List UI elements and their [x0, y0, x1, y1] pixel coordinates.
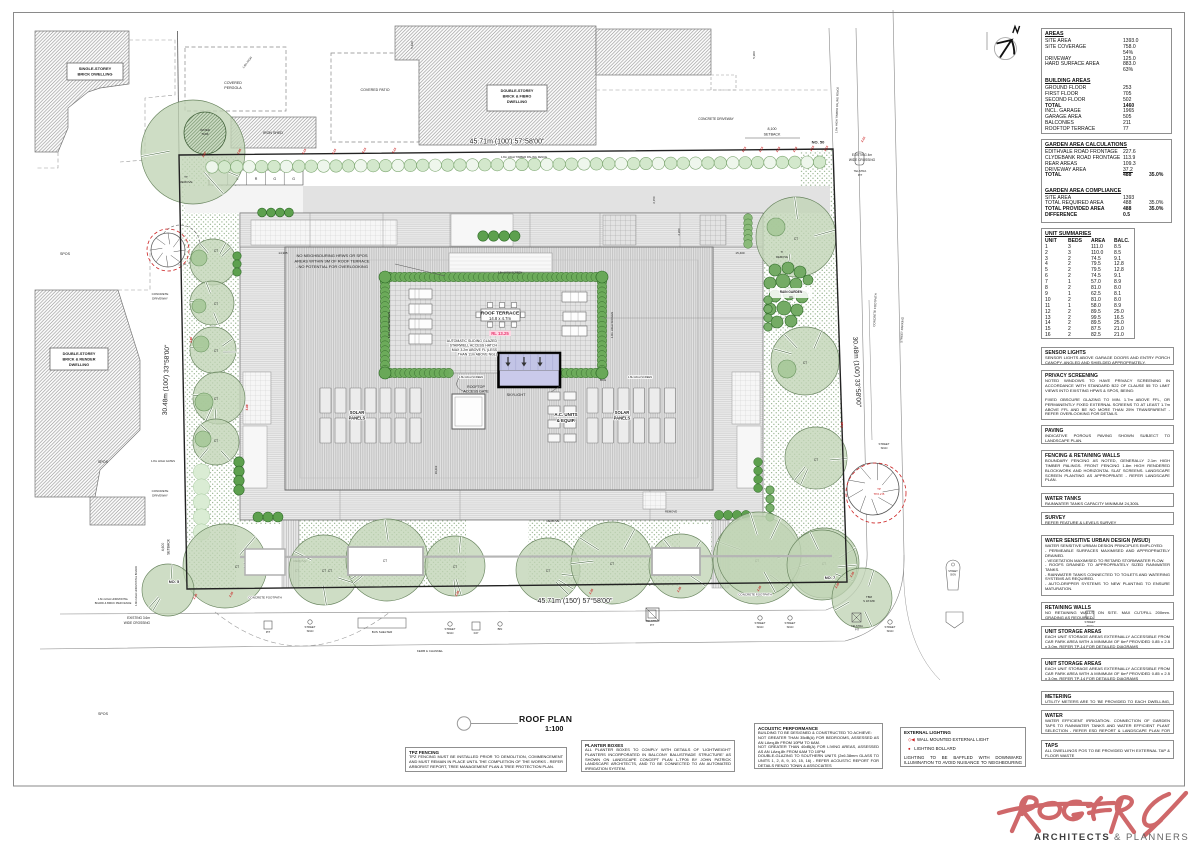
svg-text:1.8m HIGH SCREEN: 1.8m HIGH SCREEN: [498, 271, 523, 275]
svg-text:S 18 IMD: S 18 IMD: [863, 599, 875, 603]
svg-text:AUTOMATIC SLIDING GLAZED: AUTOMATIC SLIDING GLAZED: [447, 339, 498, 343]
svg-text:STREET PARKING: STREET PARKING: [899, 316, 904, 343]
svg-text:1.8m HIGH HORIZONTAL: 1.8m HIGH HORIZONTAL: [98, 597, 129, 601]
svg-text:SOLAR: SOLAR: [350, 410, 365, 415]
svg-text:3.10: 3.10: [809, 145, 816, 152]
svg-text:PANELS: PANELS: [349, 416, 366, 421]
svg-text:SPOS: SPOS: [98, 712, 109, 716]
svg-text:CT: CT: [546, 569, 550, 573]
svg-text:ROOFTOP: ROOFTOP: [467, 385, 485, 389]
svg-text:1.8m HIGH TIMBER PALING FENCE: 1.8m HIGH TIMBER PALING FENCE: [834, 87, 840, 134]
svg-text:G: G: [273, 177, 276, 181]
svg-text:IRON SHED: IRON SHED: [263, 131, 283, 135]
svg-text:ICP: ICP: [474, 631, 479, 635]
svg-text:CT: CT: [803, 361, 807, 365]
svg-text:TI: TI: [781, 250, 784, 254]
svg-text:CONCRETE: CONCRETE: [152, 292, 169, 296]
svg-text:SIGN: SIGN: [307, 629, 314, 633]
svg-text:CT: CT: [328, 569, 332, 573]
svg-text:BCG: BCG: [600, 378, 606, 382]
svg-text:DRIVEWAY: DRIVEWAY: [152, 494, 168, 498]
svg-text:- NO POTENTIAL FOR OVERLOOKING: - NO POTENTIAL FOR OVERLOOKING: [296, 264, 368, 269]
svg-text:KERB & CHANNEL: KERB & CHANNEL: [417, 649, 444, 653]
svg-text:TANK: TANK: [201, 132, 208, 136]
svg-text:3.60: 3.60: [840, 422, 844, 428]
svg-text:DOUBLE-STOREY: DOUBLE-STOREY: [63, 352, 96, 356]
svg-text:SPOS: SPOS: [98, 460, 109, 464]
svg-text:45.71m (100') 57°58'00": 45.71m (100') 57°58'00": [470, 138, 545, 146]
svg-text:SKYLIGHT: SKYLIGHT: [507, 393, 526, 397]
svg-text:CT: CT: [214, 302, 218, 306]
svg-text:CT: CT: [322, 569, 326, 573]
svg-text:COVERED: COVERED: [224, 81, 242, 85]
svg-text:SOLAR: SOLAR: [615, 410, 630, 415]
svg-text:CT: CT: [214, 249, 218, 253]
svg-text:3.10: 3.10: [775, 146, 782, 153]
svg-text:BRICK DWELLING: BRICK DWELLING: [77, 72, 112, 77]
svg-text:SPOS: SPOS: [60, 252, 71, 256]
svg-text:3.10: 3.10: [792, 146, 799, 153]
svg-text:6,150: 6,150: [652, 196, 656, 203]
svg-text:8,100: 8,100: [768, 127, 777, 131]
svg-text:NO. 7: NO. 7: [825, 575, 836, 580]
svg-text:AREAS WITHIN 9M OF ROOF TERRAC: AREAS WITHIN 9M OF ROOF TERRACE: [294, 259, 369, 264]
svg-text:REMOVE: REMOVE: [665, 510, 677, 514]
svg-text:CT: CT: [383, 559, 387, 563]
svg-text:4,600: 4,600: [161, 543, 165, 552]
svg-text:PERGOLA: PERGOLA: [224, 86, 242, 90]
svg-text:SINGLE-STOREY: SINGLE-STOREY: [79, 66, 112, 71]
svg-text:SETBACK: SETBACK: [167, 538, 171, 555]
svg-text:1.8m HIGH SCREEN: 1.8m HIGH SCREEN: [387, 312, 391, 338]
svg-text:1.8m HIGH TIMBER PALING FENCE: 1.8m HIGH TIMBER PALING FENCE: [501, 155, 547, 159]
svg-text:SIGN: SIGN: [447, 631, 454, 635]
svg-text:CONCRETE FOOTPATH: CONCRETE FOOTPATH: [248, 596, 282, 600]
svg-text:2.22: 2.22: [860, 136, 867, 143]
svg-text:ARCHITECTS: ARCHITECTS: [1034, 832, 1110, 843]
svg-text:& PLANNERS: & PLANNERS: [1114, 832, 1189, 843]
svg-text:1.8H HIGH SCREEN: 1.8H HIGH SCREEN: [628, 375, 652, 379]
svg-text:NO. 50: NO. 50: [812, 140, 825, 145]
svg-text:NO NEIGHBOURING HRWS OR SPOS: NO NEIGHBOURING HRWS OR SPOS: [296, 253, 367, 258]
svg-text:15,400: 15,400: [735, 251, 745, 255]
svg-text:CT: CT: [814, 458, 818, 462]
svg-text:CT: CT: [794, 237, 798, 241]
svg-text:CONCRETE: CONCRETE: [152, 489, 169, 493]
svg-text:TT: TT: [184, 175, 188, 179]
svg-text:OK: OK: [789, 295, 793, 299]
svg-text:BIN: BIN: [498, 627, 503, 631]
svg-text:14.8 x 4.7m: 14.8 x 4.7m: [489, 316, 511, 321]
svg-text:CT: CT: [453, 565, 457, 569]
svg-text:NO. 5: NO. 5: [169, 579, 180, 584]
svg-text:REMOVE: REMOVE: [776, 255, 788, 259]
svg-text:CONCRETE DRIVEWAY: CONCRETE DRIVEWAY: [698, 117, 734, 121]
svg-text:CT: CT: [610, 562, 614, 566]
svg-text:DRIVEWAY: DRIVEWAY: [152, 297, 168, 301]
svg-text:45.71m (150') 57°58'00": 45.71m (150') 57°58'00": [538, 597, 613, 605]
svg-text:WIDE CROSSING: WIDE CROSSING: [124, 621, 151, 625]
svg-text:3.10: 3.10: [741, 146, 748, 153]
svg-text:CT: CT: [214, 439, 218, 443]
svg-text:RL 13.25: RL 13.25: [491, 331, 509, 336]
svg-text:DWELLING: DWELLING: [507, 100, 527, 104]
svg-text:1.8m HIGH SCREEN: 1.8m HIGH SCREEN: [610, 312, 614, 338]
svg-text:TP: TP: [877, 487, 881, 491]
svg-text:SIGN: SIGN: [787, 625, 794, 629]
svg-text:3.60: 3.60: [189, 337, 193, 343]
svg-text:SIGN: SIGN: [950, 574, 956, 577]
svg-text:BRICK & FIBRO: BRICK & FIBRO: [503, 95, 532, 99]
svg-text:THAN 11m ABOVE NGL): THAN 11m ABOVE NGL): [458, 353, 497, 357]
svg-text:CT: CT: [235, 565, 239, 569]
svg-text:PIT: PIT: [266, 630, 271, 634]
svg-text:BUS SHELTER: BUS SHELTER: [372, 630, 393, 634]
svg-text:SIGN: SIGN: [757, 625, 764, 629]
svg-text:PIT: PIT: [858, 173, 863, 177]
svg-text:DOUBLE-STOREY: DOUBLE-STOREY: [501, 89, 534, 93]
svg-text:WIDE CROSSING: WIDE CROSSING: [849, 158, 876, 162]
svg-text:R: R: [255, 177, 258, 181]
svg-text:30.48m (100') 33°58'00": 30.48m (100') 33°58'00": [161, 344, 171, 415]
svg-text:5,900: 5,900: [752, 51, 756, 59]
svg-text:DWELLING: DWELLING: [69, 363, 89, 367]
svg-text:30.48m (100') 33°58'00": 30.48m (100') 33°58'00": [851, 336, 863, 408]
svg-text:RAIN GARDEN: RAIN GARDEN: [780, 290, 803, 294]
svg-text:3.60: 3.60: [245, 404, 249, 410]
svg-text:CT: CT: [214, 349, 218, 353]
svg-text:1.8m HIGH GATES: 1.8m HIGH GATES: [151, 459, 175, 463]
svg-text:REMOVE: REMOVE: [546, 519, 559, 523]
svg-text:BOARD & BRICK PIER FENCE: BOARD & BRICK PIER FENCE: [95, 601, 132, 605]
svg-text:REMOVE: REMOVE: [179, 180, 192, 184]
svg-text:EXISTING 3.6m: EXISTING 3.6m: [127, 616, 150, 620]
svg-text:1.8m HIGH HORIZONTAL BOARD: 1.8m HIGH HORIZONTAL BOARD: [134, 566, 138, 606]
svg-text:G: G: [292, 177, 295, 181]
svg-text:5,420: 5,420: [410, 41, 414, 49]
svg-text:CONCRETE FOOTPATH: CONCRETE FOOTPATH: [738, 593, 772, 597]
svg-text:& EQUIP.: & EQUIP.: [557, 418, 576, 423]
svg-text:SIGN: SIGN: [881, 446, 888, 450]
svg-text:TP2.2 B: TP2.2 B: [874, 492, 885, 496]
svg-text:TELSTRA: TELSTRA: [851, 624, 863, 628]
svg-text:SETBACK: SETBACK: [764, 133, 781, 137]
svg-text:PIT: PIT: [650, 623, 655, 627]
svg-text:14,905: 14,905: [278, 251, 288, 255]
svg-text:CONCRETE FOOTPATH: CONCRETE FOOTPATH: [872, 293, 878, 327]
svg-text:A.C. UNITS: A.C. UNITS: [554, 412, 577, 417]
svg-text:STAIRWELL ACCESS HATCH: STAIRWELL ACCESS HATCH: [450, 344, 498, 348]
svg-text:PIT: PIT: [855, 628, 859, 632]
svg-text:SIGN: SIGN: [887, 629, 894, 633]
svg-text:2,260: 2,260: [677, 228, 681, 235]
svg-text:COVERED PATIO: COVERED PATIO: [360, 88, 389, 92]
svg-text:BRICK & RENDER: BRICK & RENDER: [63, 358, 96, 362]
svg-text:3.10: 3.10: [758, 146, 765, 153]
svg-text:PANELS: PANELS: [614, 416, 631, 421]
svg-text:19,263: 19,263: [434, 465, 438, 474]
svg-text:1.8H HIGH SCREEN: 1.8H HIGH SCREEN: [459, 375, 483, 379]
svg-text:ACCESS GATE: ACCESS GATE: [463, 390, 489, 394]
svg-text:MAX 3.2m ABOVE FL (LESS: MAX 3.2m ABOVE FL (LESS: [452, 348, 498, 352]
svg-text:CT: CT: [214, 397, 218, 401]
